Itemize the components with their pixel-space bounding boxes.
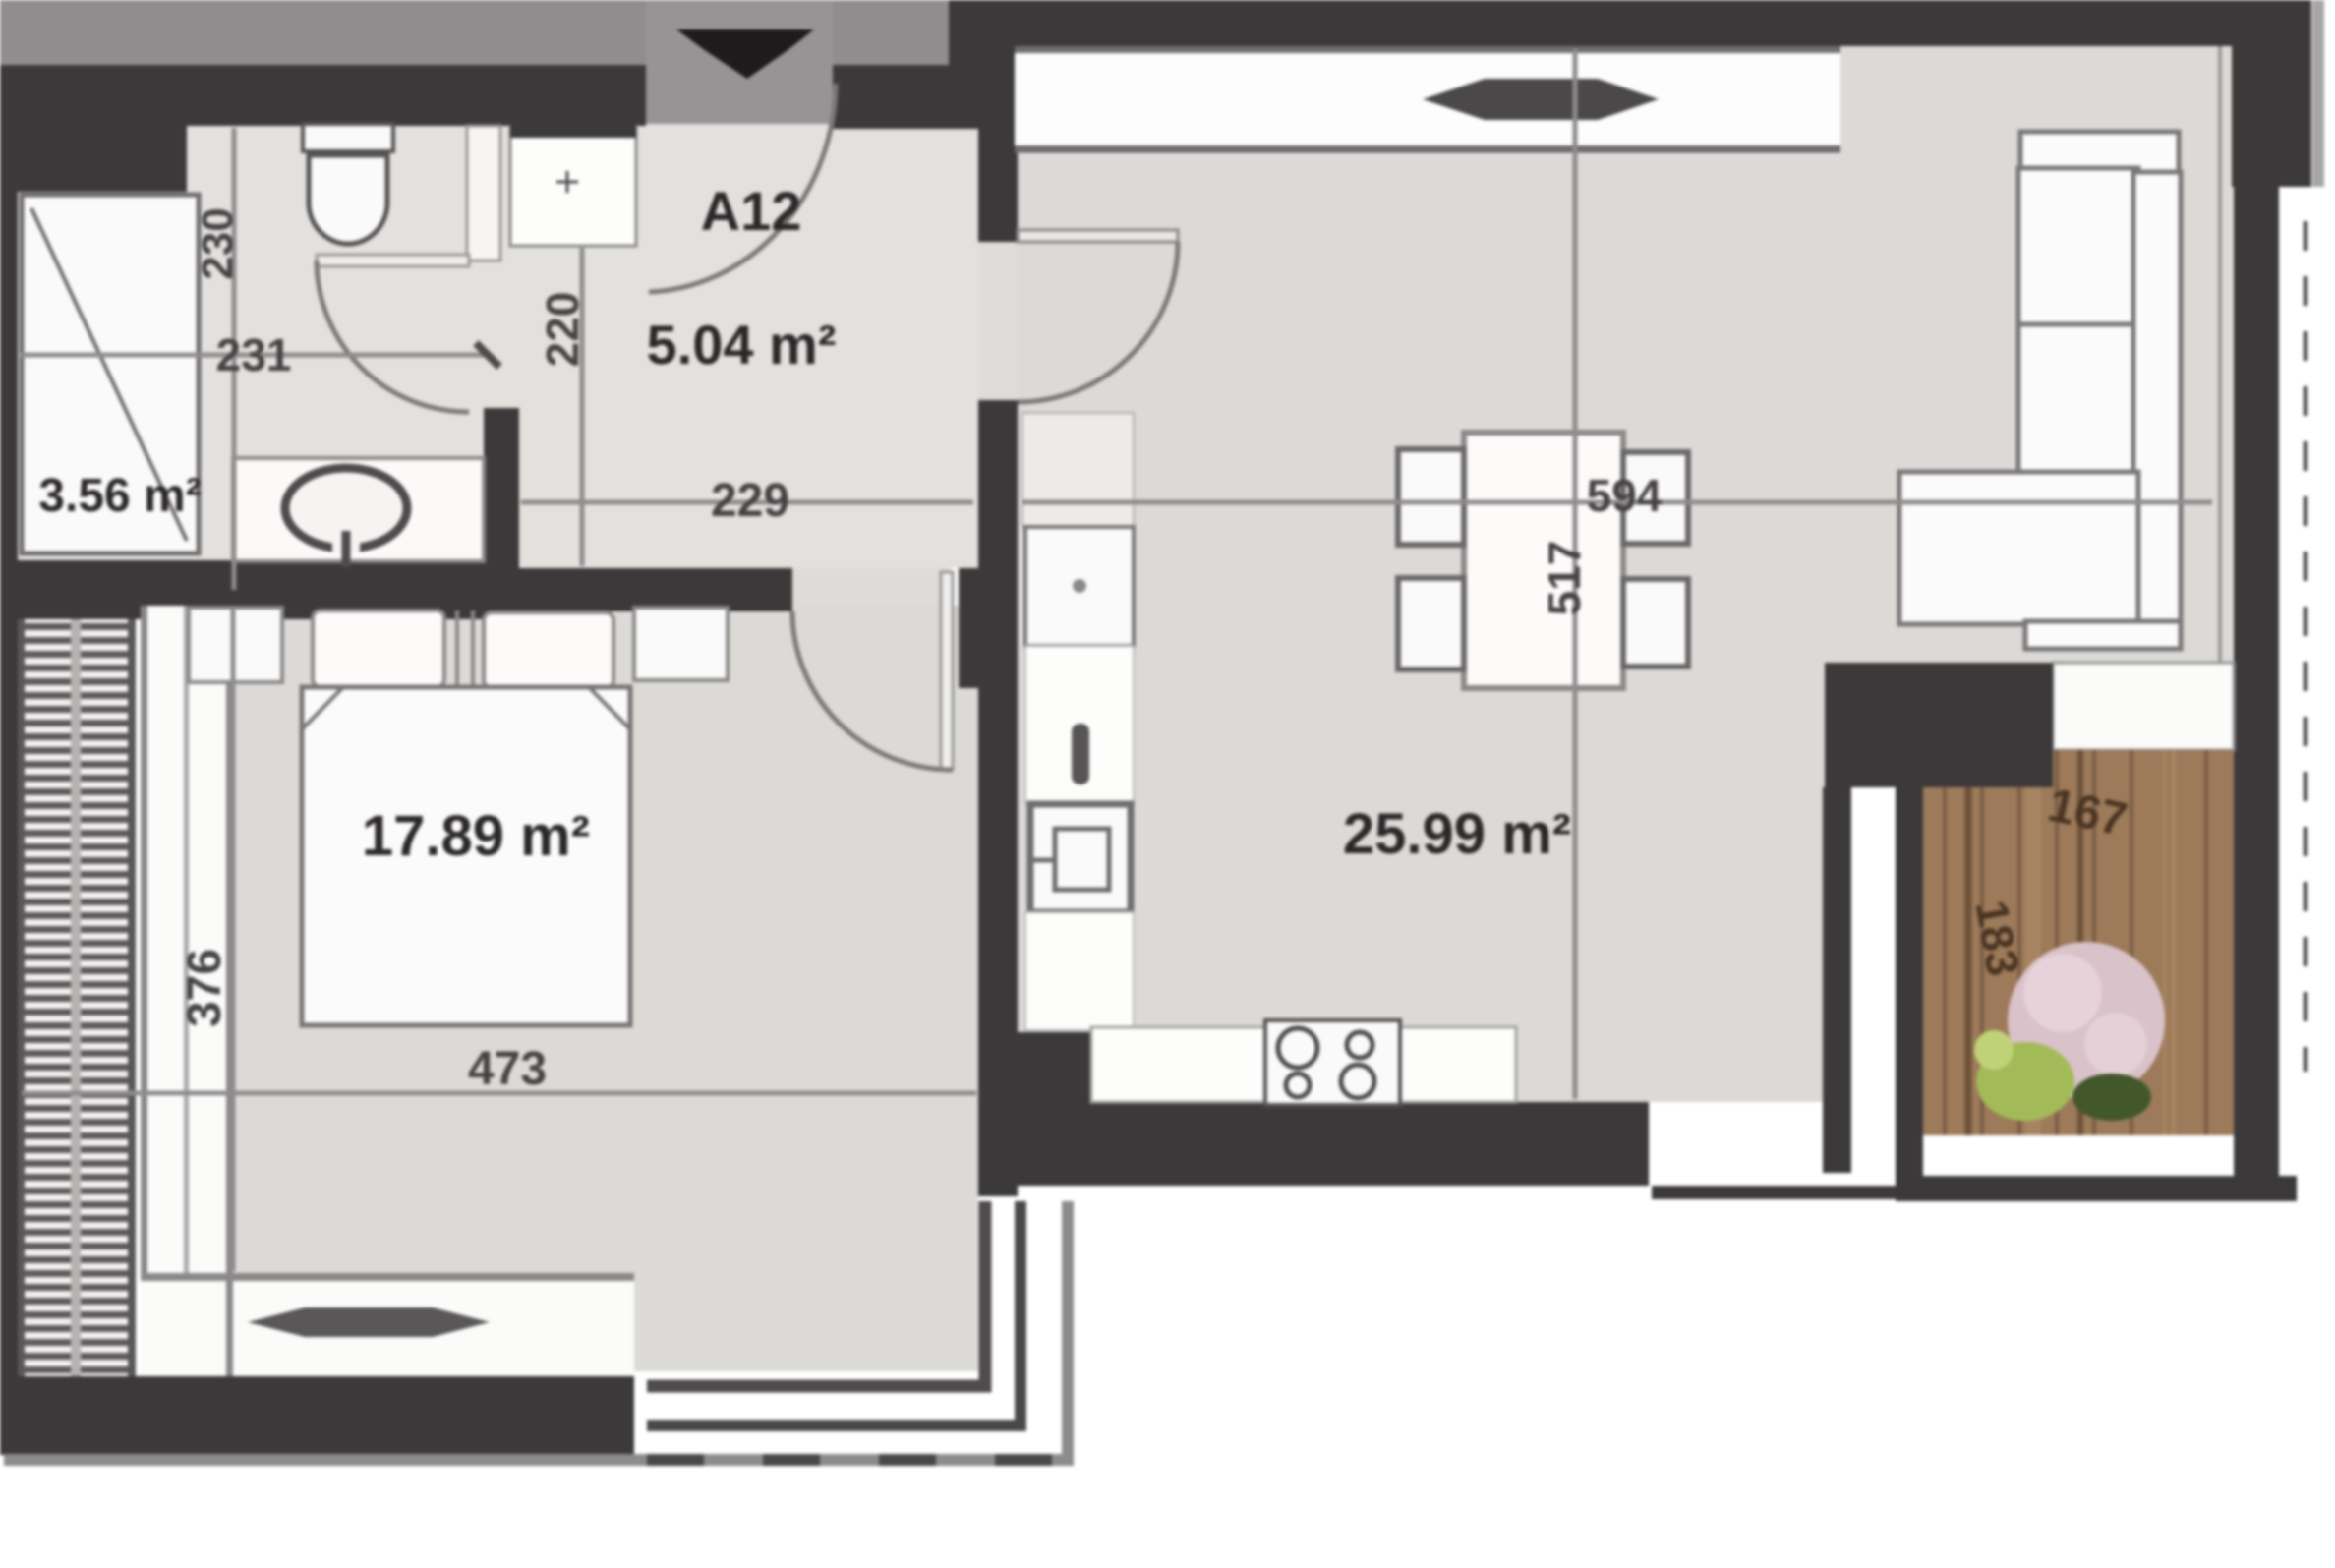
svg-text:25.99 m²: 25.99 m² bbox=[1343, 802, 1571, 866]
svg-text:594: 594 bbox=[1587, 470, 1663, 521]
svg-text:3.56 m²: 3.56 m² bbox=[38, 470, 201, 522]
svg-text:473: 473 bbox=[468, 1043, 547, 1095]
svg-text:A12: A12 bbox=[701, 180, 802, 242]
svg-text:517: 517 bbox=[1539, 541, 1590, 616]
svg-text:5.04 m²: 5.04 m² bbox=[647, 314, 837, 376]
svg-text:376: 376 bbox=[179, 949, 231, 1027]
svg-text:220: 220 bbox=[537, 292, 588, 368]
svg-text:17.89 m²: 17.89 m² bbox=[362, 804, 590, 868]
svg-text:230: 230 bbox=[194, 207, 242, 279]
svg-text:229: 229 bbox=[711, 475, 789, 527]
svg-text:231: 231 bbox=[216, 329, 292, 380]
